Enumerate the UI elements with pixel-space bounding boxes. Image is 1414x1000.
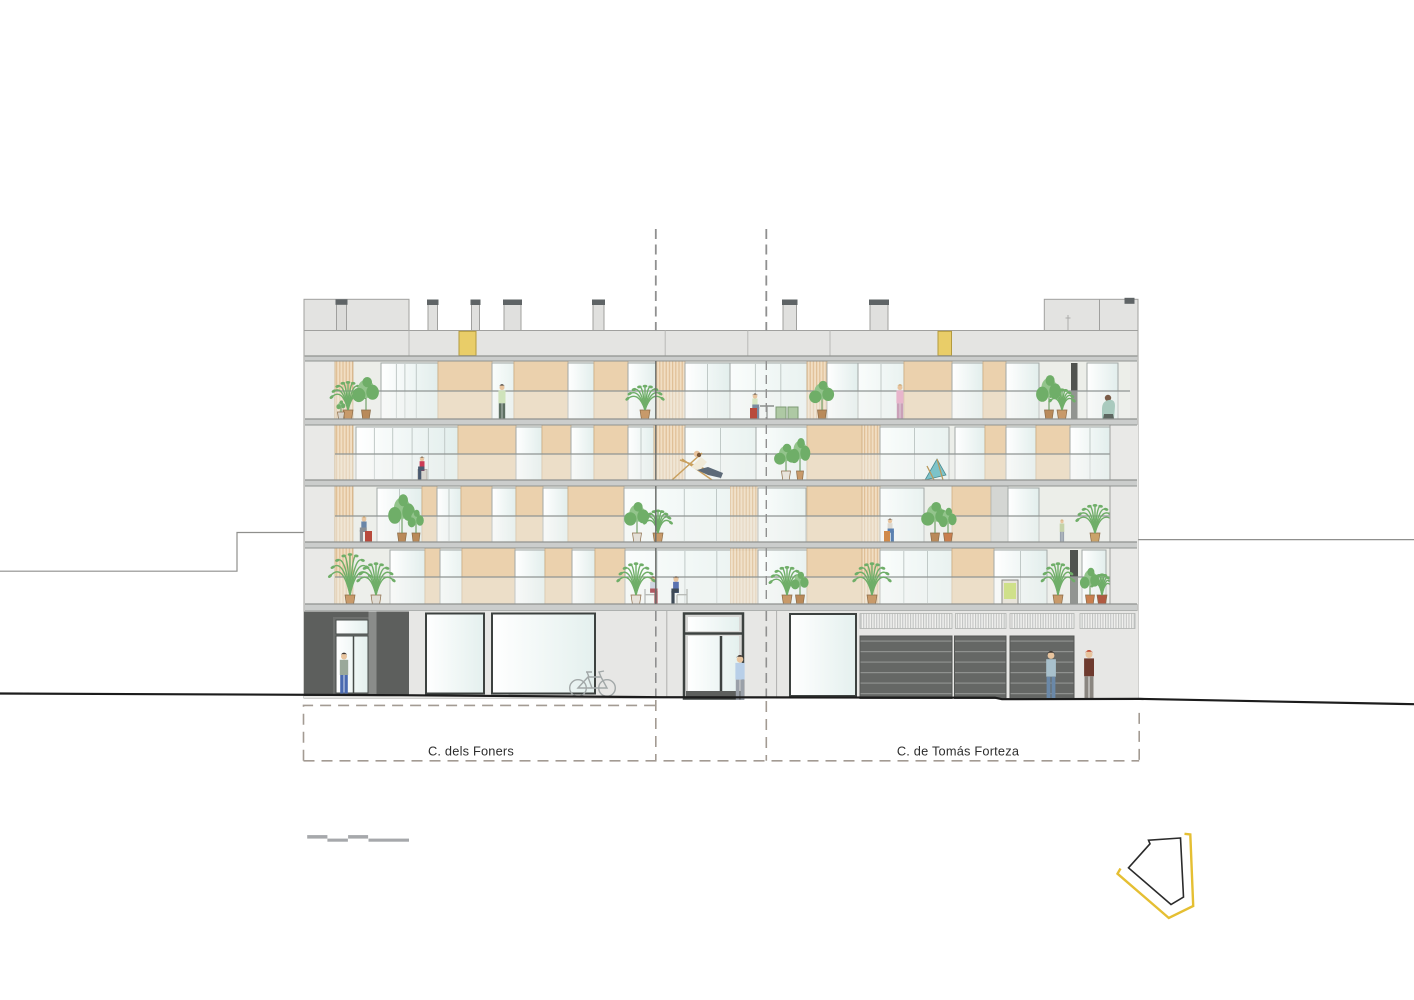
svg-text:C. de Tomás Forteza: C. de Tomás Forteza: [897, 744, 1020, 759]
svg-text:C. dels Foners: C. dels Foners: [428, 744, 514, 759]
